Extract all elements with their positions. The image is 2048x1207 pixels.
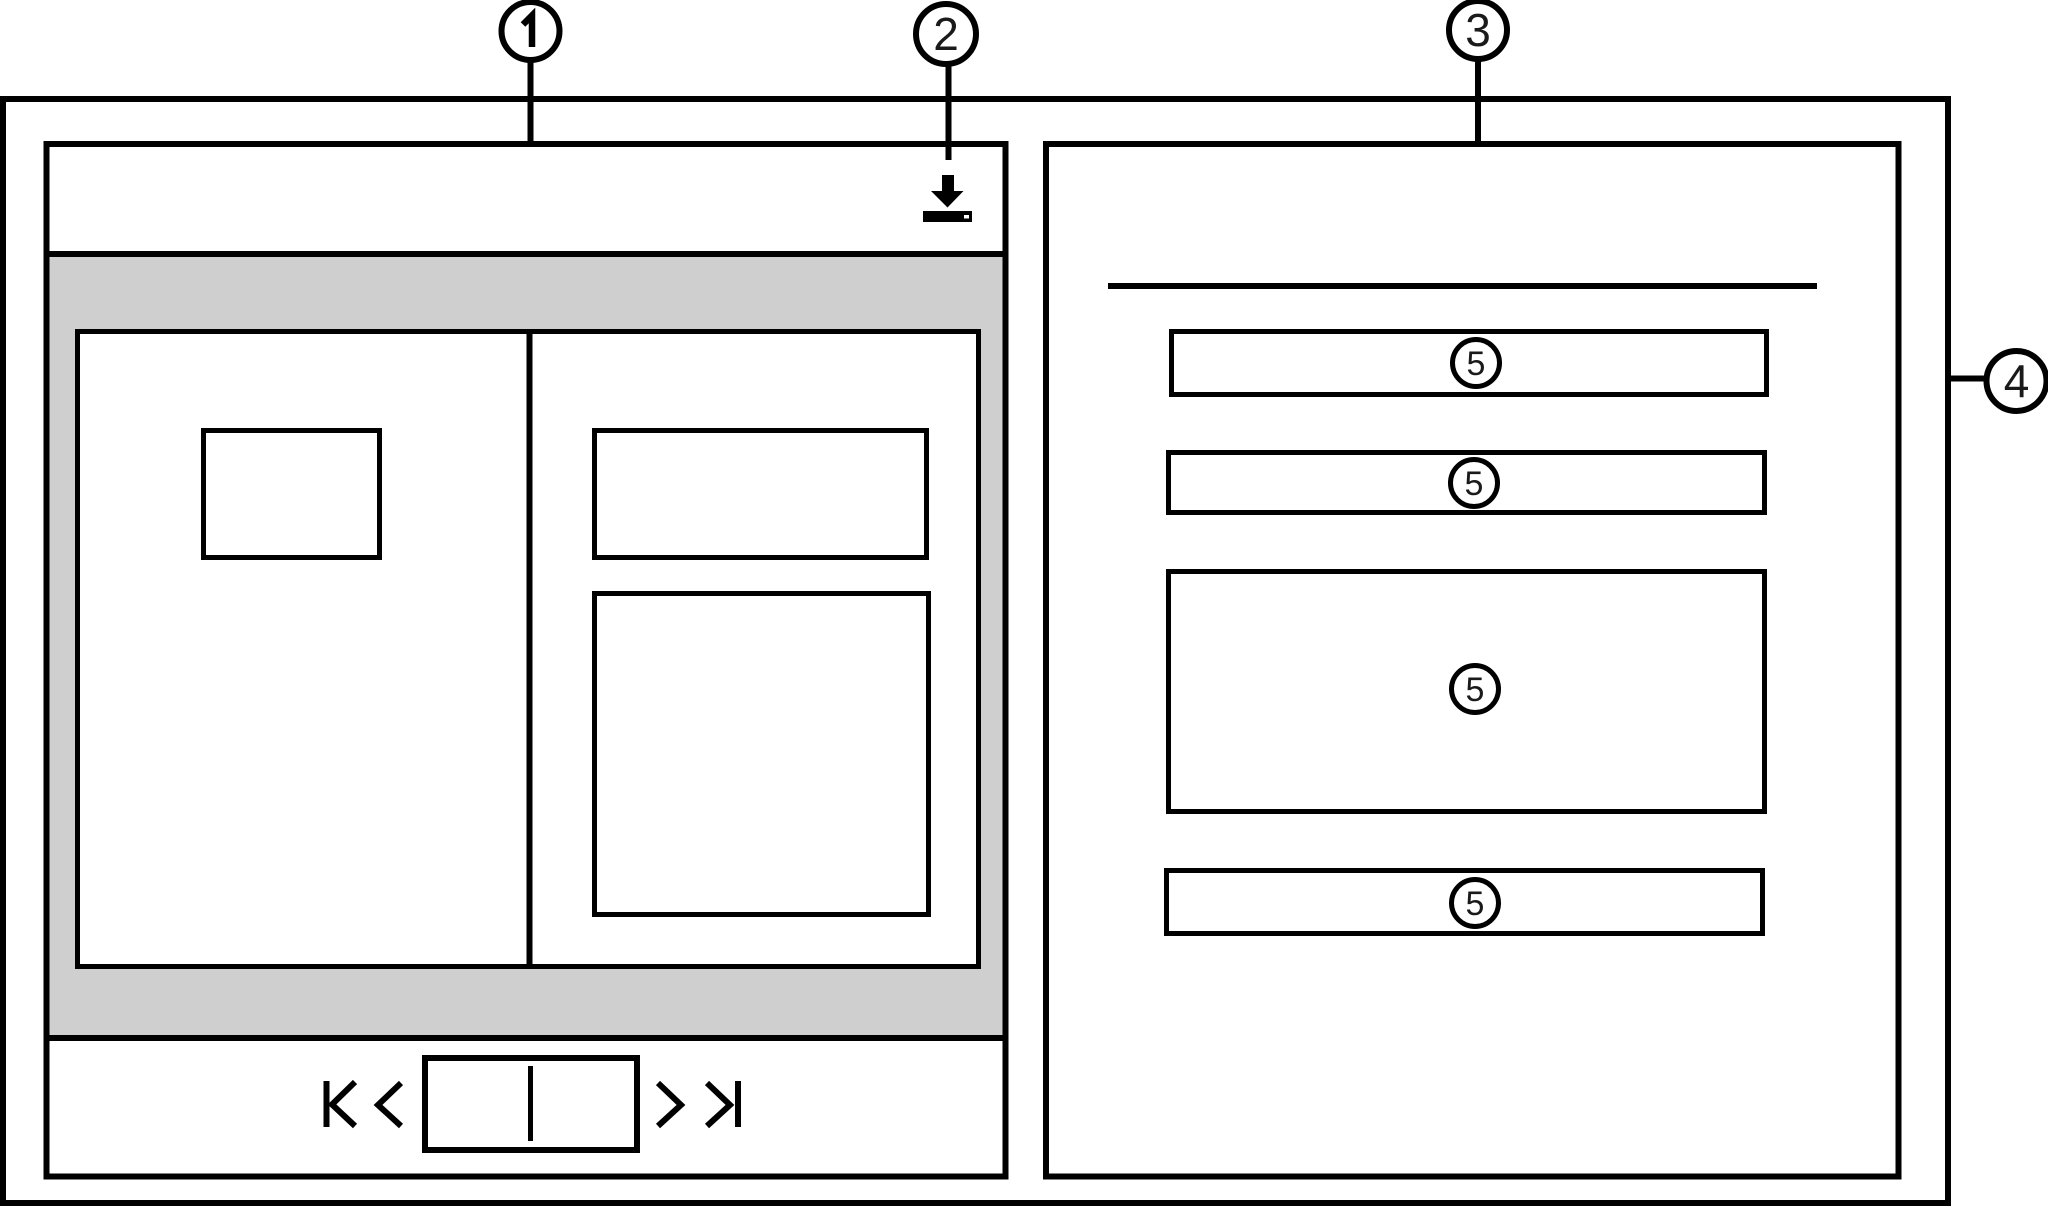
svg-text:5: 5 (1465, 465, 1484, 503)
svg-text:5: 5 (1466, 885, 1485, 923)
svg-text:4: 4 (2004, 355, 2030, 407)
svg-text:2: 2 (933, 8, 959, 60)
svg-text:5: 5 (1466, 671, 1485, 709)
svg-text:3: 3 (1465, 4, 1491, 56)
svg-text:5: 5 (1467, 345, 1486, 383)
